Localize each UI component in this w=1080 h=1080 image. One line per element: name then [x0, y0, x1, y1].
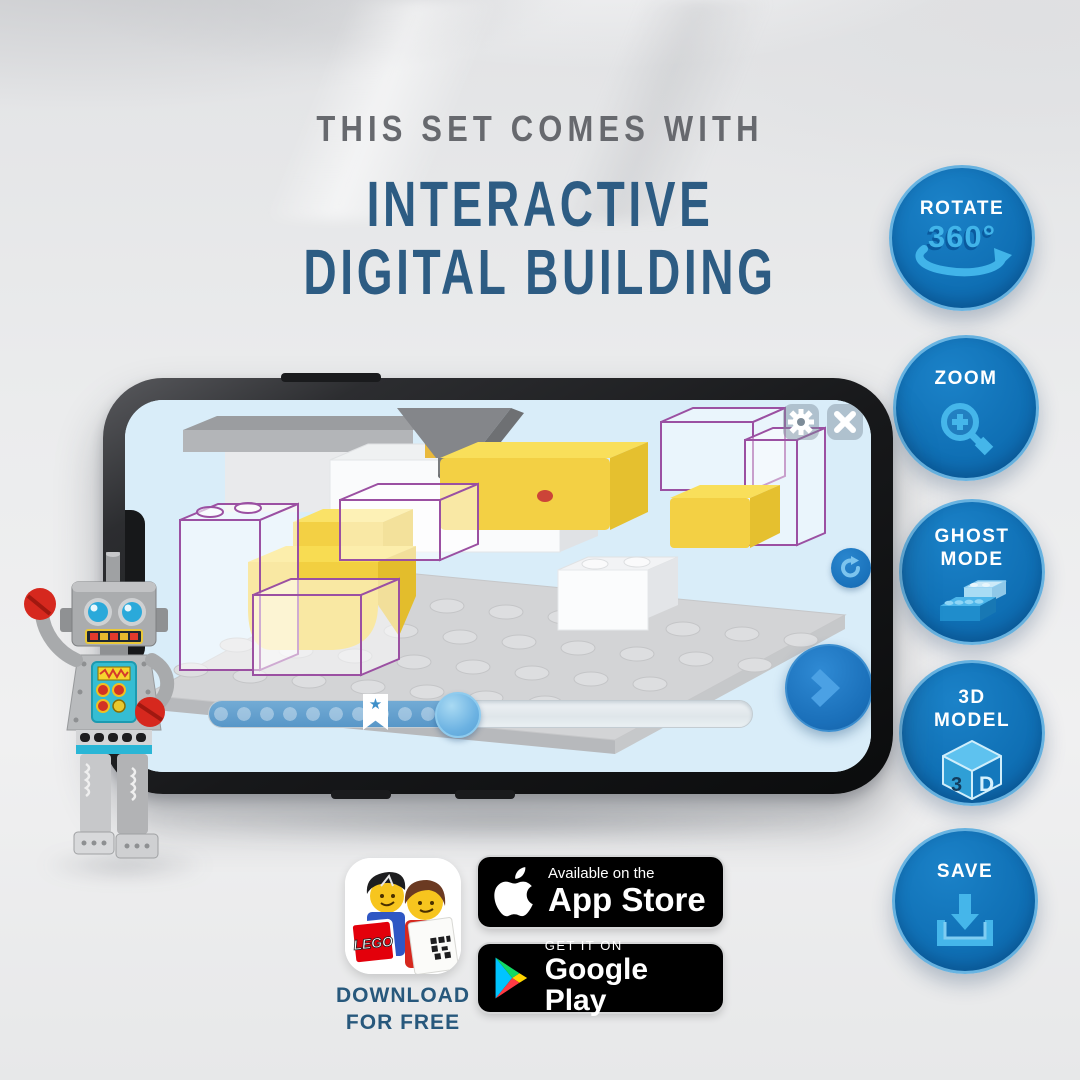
headline-title-line1: INTERACTIVE — [151, 172, 929, 236]
magnifier-plus-icon — [933, 397, 999, 461]
download-tray-icon — [933, 894, 997, 948]
feature-badge-ghost-mode: GHOSTMODE — [899, 499, 1045, 645]
gear-icon — [788, 409, 814, 435]
google-play-tagline: GET IT ON — [545, 939, 713, 953]
google-play-badge[interactable]: GET IT ON Google Play — [478, 944, 723, 1012]
phone-volume-button — [455, 790, 515, 799]
app-store-badge[interactable]: Available on the App Store — [478, 857, 723, 927]
feature-label: ROTATE — [920, 198, 1004, 221]
headline-title-line2: DIGITAL BUILDING — [151, 240, 929, 304]
svg-text:D: D — [979, 773, 994, 796]
rotate-360-arrow-icon — [910, 243, 1014, 277]
phone-volume-button — [331, 790, 391, 799]
chevron-right-icon — [806, 665, 852, 711]
feature-badge-3d-model: 3DMODEL 3 D — [899, 660, 1045, 806]
star-icon: ★ — [369, 696, 382, 713]
marketing-image: THIS SET COMES WITH INTERACTIVE DIGITAL … — [0, 0, 1080, 1080]
rotate-reset-icon — [839, 556, 863, 580]
feature-label: 3DMODEL — [934, 687, 1010, 733]
robot-minifigure — [20, 552, 210, 870]
next-step-button[interactable] — [785, 644, 871, 732]
lego-app-icon[interactable]: LEGO — [345, 858, 461, 974]
lego-app-icon-art: LEGO — [345, 858, 461, 974]
settings-button[interactable] — [783, 404, 819, 440]
slider-thumb[interactable] — [435, 692, 481, 738]
feature-badge-rotate: ROTATE 360° — [889, 165, 1035, 311]
phone-reflection — [140, 798, 860, 844]
feature-badge-zoom: ZOOM — [893, 335, 1039, 481]
headline-eyebrow: THIS SET COMES WITH — [76, 108, 1005, 150]
google-play-logo-icon — [490, 954, 533, 1002]
red-piece — [537, 490, 553, 502]
close-button[interactable] — [827, 404, 863, 440]
feature-label: ZOOM — [935, 368, 998, 391]
apple-logo-icon — [494, 866, 536, 918]
feature-badge-save: SAVE — [892, 828, 1038, 974]
app-screen: ★ — [125, 400, 871, 772]
phone-mockup: ★ — [103, 378, 893, 794]
feature-label: GHOSTMODE — [934, 526, 1009, 572]
app-store-name: App Store — [548, 883, 706, 918]
reset-rotation-button[interactable] — [831, 548, 871, 588]
svg-text:3: 3 — [951, 774, 962, 796]
build-progress-slider[interactable]: ★ — [208, 700, 753, 728]
close-icon — [834, 411, 856, 433]
download-for-free-label: DOWNLOADFOR FREE — [315, 982, 491, 1037]
slider-fill — [209, 701, 459, 727]
phone-power-button — [281, 373, 381, 382]
yellow-brick-far-right — [670, 485, 780, 548]
cube-3d-icon: 3 D — [937, 739, 1007, 803]
google-play-name: Google Play — [545, 954, 713, 1017]
feature-label: SAVE — [937, 861, 993, 884]
ghost-bricks-icon — [932, 578, 1012, 630]
